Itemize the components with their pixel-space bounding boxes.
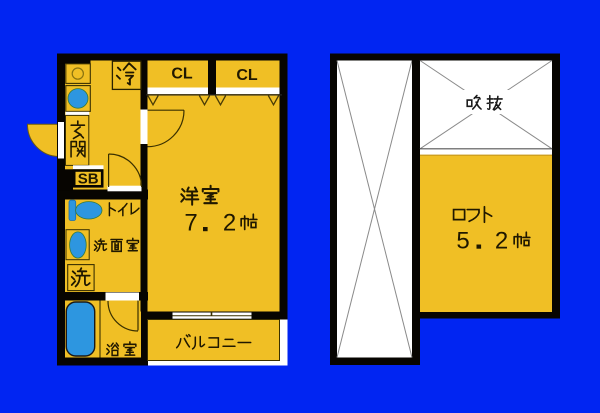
svg-text:5: 5 (456, 228, 469, 255)
svg-text:7: 7 (184, 210, 197, 237)
svg-text:CL: CL (236, 67, 258, 84)
svg-text:SB: SB (78, 171, 99, 188)
svg-text:2: 2 (495, 228, 508, 255)
svg-text:2: 2 (223, 210, 236, 237)
svg-text:CL: CL (171, 66, 193, 83)
